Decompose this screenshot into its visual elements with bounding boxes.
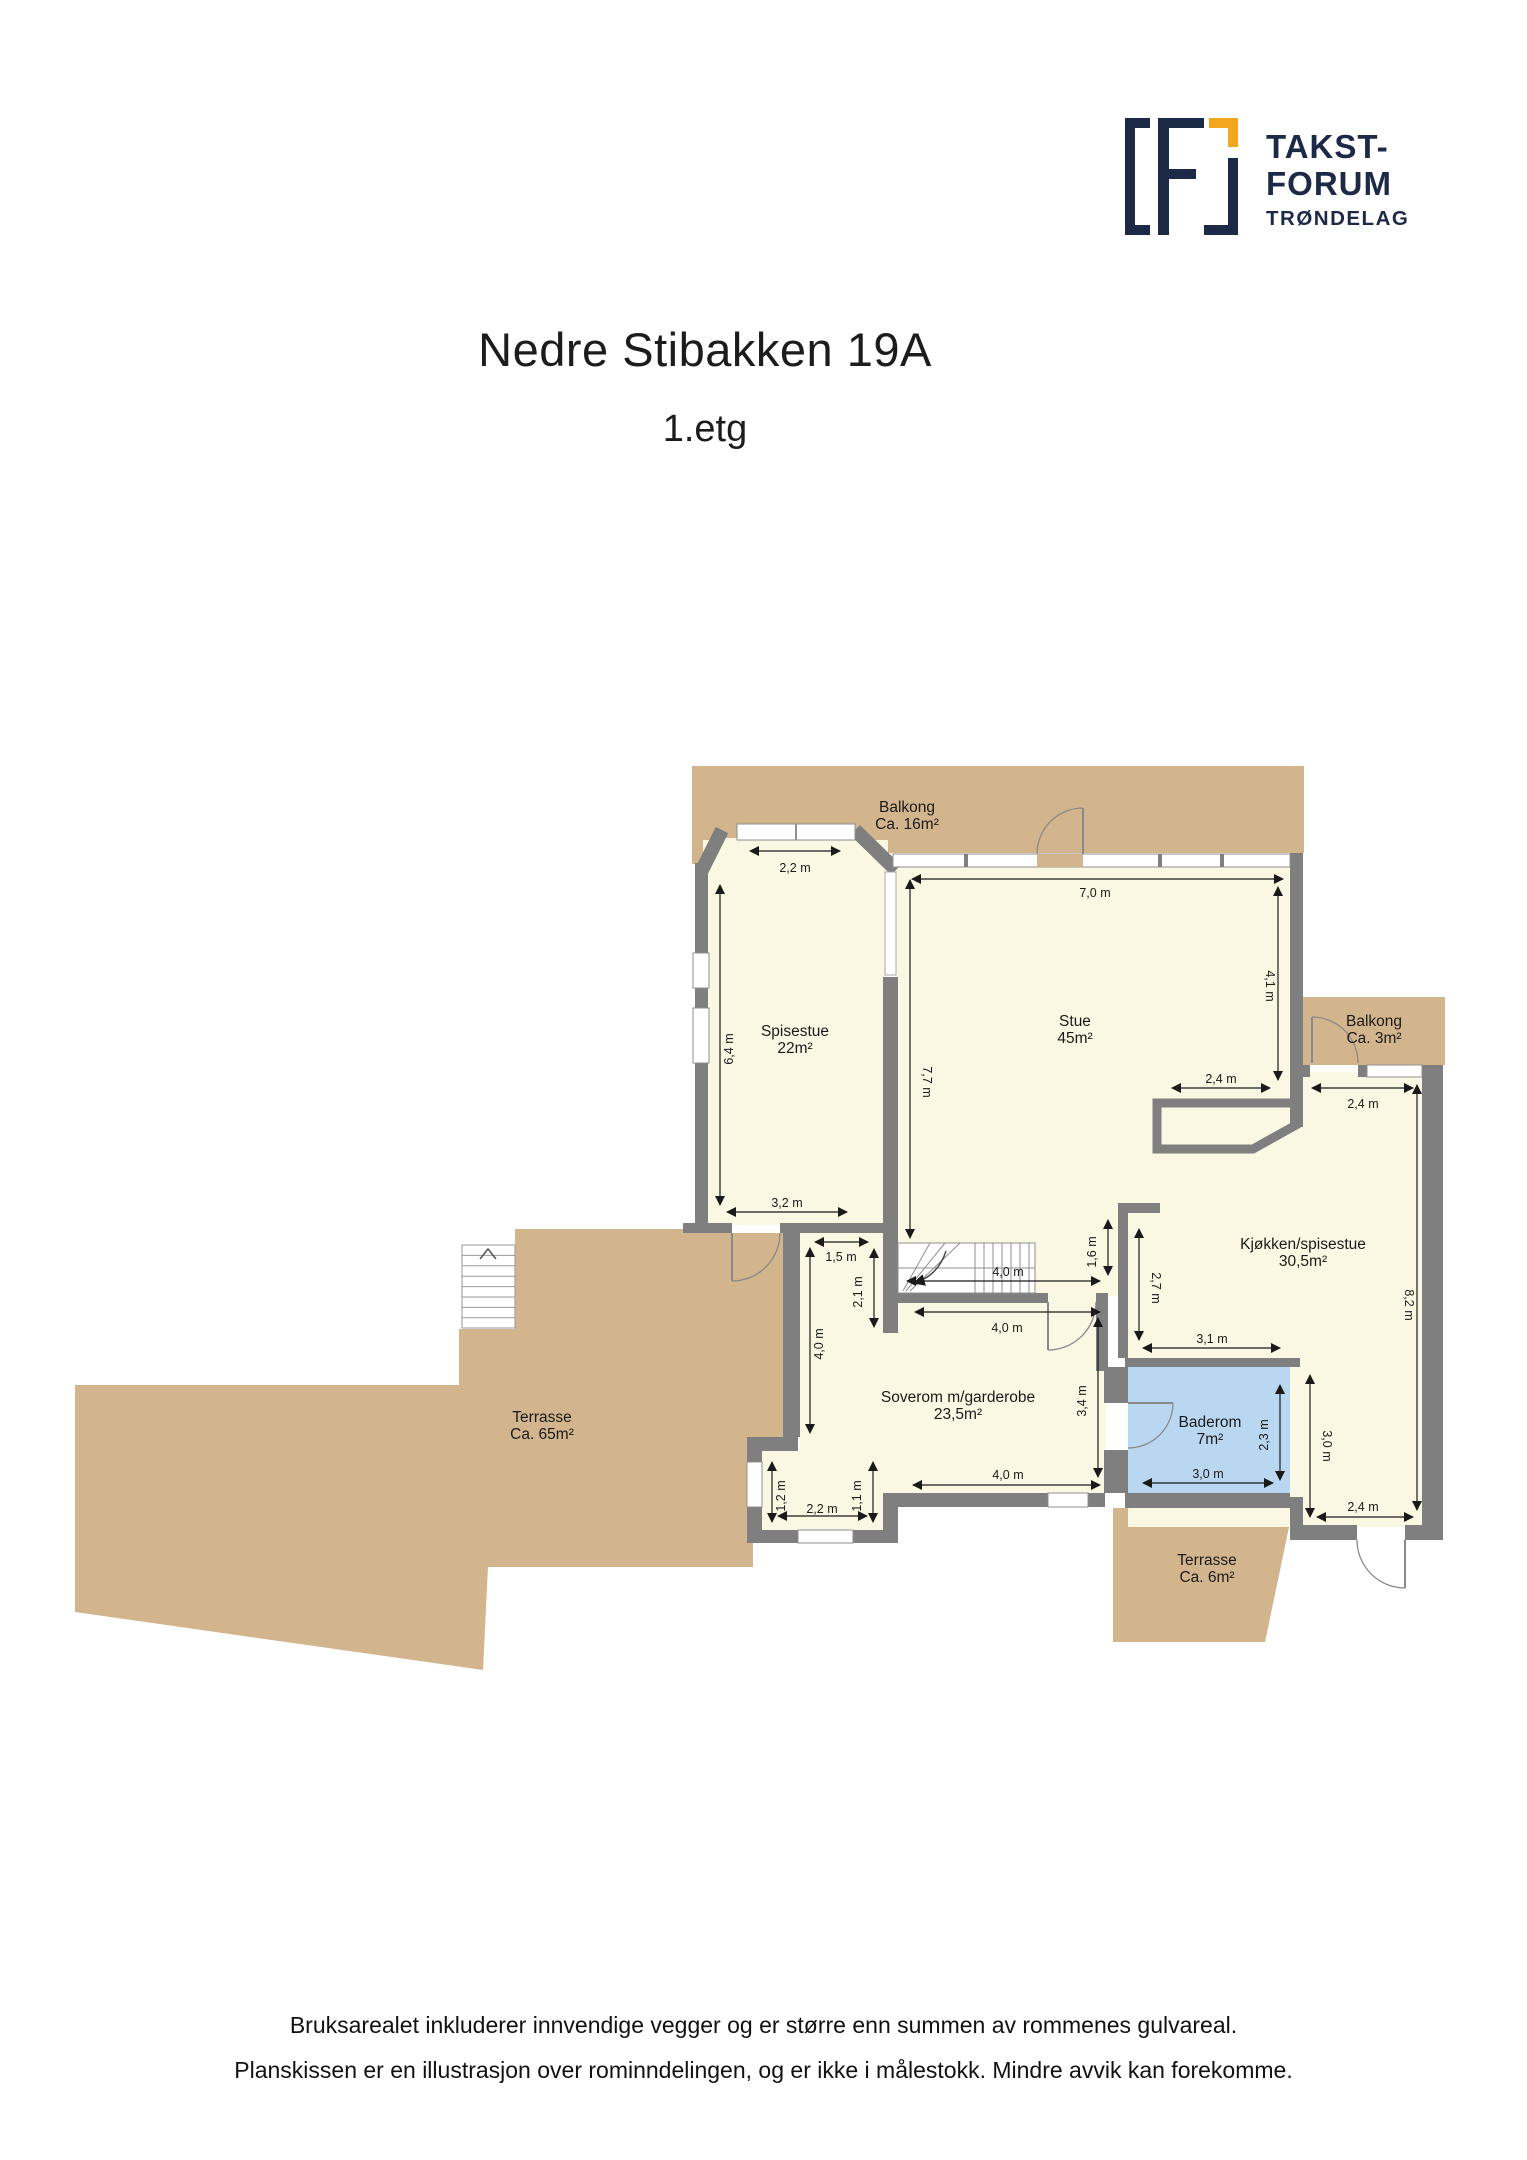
- room-label-balkong: BalkongCa. 16m²: [875, 799, 939, 833]
- dimension-label: 2,2 m: [806, 1502, 837, 1516]
- dimension-label: 2,4 m: [1347, 1097, 1378, 1111]
- window-bumpout-bottom: [798, 1530, 853, 1543]
- room-label-terrasse: TerrasseCa. 6m²: [1177, 1552, 1236, 1586]
- dimension-label: 3,0 m: [1320, 1430, 1334, 1461]
- wall: [1290, 1525, 1357, 1540]
- dimension-label: 4,0 m: [992, 1265, 1023, 1279]
- floor-plan: BalkongCa. 16m²Spisestue22m²Stue45m²Balk…: [0, 0, 1527, 2160]
- terrace-65: [75, 1229, 783, 1670]
- room-label-balkong: BalkongCa. 3m²: [1346, 1013, 1402, 1047]
- wall: [1125, 1358, 1300, 1367]
- window-soverom-bottom: [1048, 1493, 1088, 1507]
- dimension-label: 4,0 m: [991, 1321, 1022, 1335]
- wall: [893, 1293, 1048, 1303]
- dimension-label: 7,0 m: [1079, 886, 1110, 900]
- floorplan-page: TAKST- FORUM TRØNDELAG Nedre Stibakken 1…: [0, 0, 1527, 2160]
- dimension-label: 2,4 m: [1205, 1072, 1236, 1086]
- dimension-label: 1,1 m: [850, 1480, 864, 1511]
- wall: [695, 988, 708, 1008]
- dimension-label: 1,2 m: [774, 1480, 788, 1511]
- footer-disclaimer-1: Bruksarealet inkluderer innvendige vegge…: [0, 2012, 1527, 2039]
- wall: [747, 1437, 762, 1462]
- wall: [883, 977, 898, 1223]
- wall: [1290, 853, 1303, 1127]
- dimension-label: 6,4 m: [722, 1033, 736, 1064]
- dimension-label: 3,1 m: [1196, 1332, 1227, 1346]
- room-label-terrasse: TerrasseCa. 65m²: [510, 1409, 574, 1443]
- dimension-label: 8,2 m: [1402, 1289, 1416, 1320]
- dimension-label: 4,0 m: [812, 1328, 826, 1359]
- door-arc-kitchen-exit: [1357, 1540, 1405, 1588]
- window-spisestue-left-1: [693, 953, 709, 988]
- dimension-label: 3,2 m: [771, 1196, 802, 1210]
- wall: [783, 1232, 800, 1437]
- dimension-label: 2,3 m: [1257, 1419, 1271, 1450]
- wall: [883, 1493, 1048, 1507]
- wall: [1125, 1493, 1290, 1508]
- wall: [1127, 1203, 1160, 1213]
- dimension-label: 2,4 m: [1347, 1500, 1378, 1514]
- wall: [1358, 1065, 1367, 1077]
- window-bumpout-left: [747, 1462, 762, 1507]
- dimension-label: 4,1 m: [1263, 970, 1277, 1001]
- wall: [1290, 1065, 1310, 1077]
- wall: [747, 1507, 762, 1533]
- wall: [1104, 1367, 1128, 1403]
- dimension-label: 4,0 m: [992, 1468, 1023, 1482]
- dimension-label: 3,0 m: [1192, 1467, 1223, 1481]
- wall: [695, 1063, 708, 1230]
- wall: [747, 1530, 798, 1543]
- wall: [1104, 1450, 1128, 1493]
- door-gap-balcony16: [1037, 854, 1083, 867]
- wall: [1118, 1203, 1128, 1358]
- opening-spisestue-stue: [885, 872, 896, 975]
- room-label-stue: Stue45m²: [1057, 1013, 1092, 1047]
- dimension-label: 2,2 m: [779, 861, 810, 875]
- wall: [883, 1233, 898, 1333]
- wall: [1088, 1493, 1105, 1507]
- window-kitchen-balcony3: [1367, 1065, 1422, 1077]
- window-stue-band: [893, 854, 1290, 867]
- dimension-label: 2,1 m: [851, 1276, 865, 1307]
- dimension-label: 7,7 m: [920, 1066, 934, 1097]
- dimension-label: 3,4 m: [1075, 1385, 1089, 1416]
- wall: [683, 1223, 732, 1233]
- footer-disclaimer-2: Planskissen er en illustrasjon over romi…: [0, 2057, 1527, 2084]
- dimension-label: 1,5 m: [825, 1250, 856, 1264]
- wall: [695, 863, 708, 953]
- dimension-label: 1,6 m: [1085, 1236, 1099, 1267]
- window-spisestue-left-2: [693, 1008, 709, 1063]
- wall: [780, 1223, 898, 1233]
- dimension-label: 2,7 m: [1149, 1272, 1163, 1303]
- wall: [1422, 1065, 1443, 1540]
